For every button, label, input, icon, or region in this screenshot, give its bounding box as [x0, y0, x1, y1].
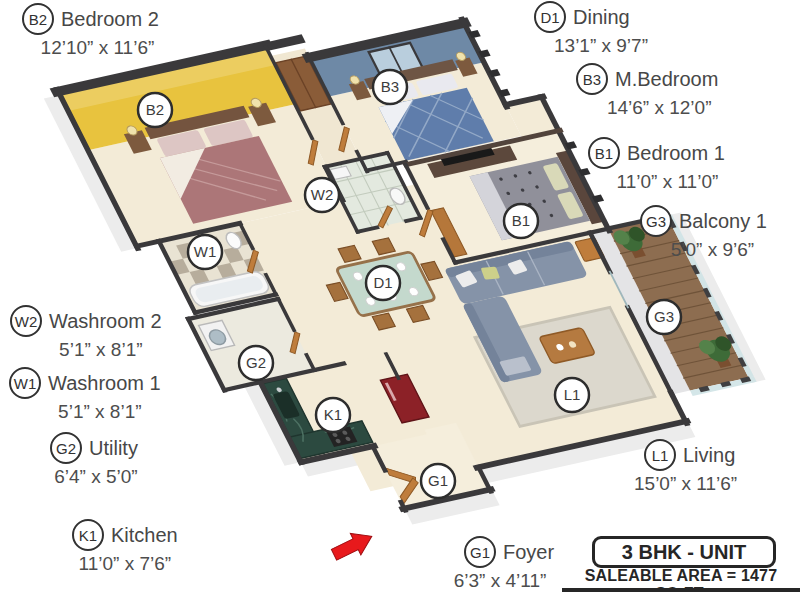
saleable-area-text: SALEABLE AREA = 1477 SQ.FT. — [562, 567, 800, 592]
svg-text:W1: W1 — [194, 243, 217, 260]
room-label-g3: G3Balcony 1 5’0” x 9’6” — [640, 205, 767, 261]
svg-text:B1: B1 — [512, 212, 530, 229]
room-name-w1: Washroom 1 — [48, 372, 161, 395]
floorplan-root: B2 B3 W2 W1 D1 B1 G2 K1 G1 L1 G3 B2Bedro… — [0, 0, 800, 592]
plan-badge-b3: B3 — [373, 70, 407, 104]
room-badge-g2: G2 — [50, 432, 82, 464]
room-badge-b2: B2 — [22, 3, 54, 35]
room-label-w1: W1Washroom 1 5’1” x 8’1” — [9, 367, 161, 423]
room-name-g1: Foyer — [503, 541, 554, 564]
room-name-d1: Dining — [573, 6, 630, 29]
room-label-k1: K1Kitchen 11’0” x 7’6” — [72, 519, 178, 575]
room-name-b2: Bedroom 2 — [61, 8, 159, 31]
plan-badge-w2: W2 — [305, 178, 339, 212]
entrance-arrow-icon — [329, 526, 377, 566]
room-dims-g2: 6’4” x 5’0” — [54, 466, 138, 488]
svg-text:G1: G1 — [428, 472, 448, 489]
room-name-w2: Washroom 2 — [49, 310, 162, 333]
svg-text:B2: B2 — [146, 101, 164, 118]
plan-badge-g3: G3 — [647, 300, 681, 334]
svg-text:L1: L1 — [564, 386, 581, 403]
room-name-g3: Balcony 1 — [679, 210, 767, 233]
room-label-g2: G2Utility 6’4” x 5’0” — [50, 432, 138, 488]
room-dims-g1: 6’3” x 4’11” — [446, 570, 554, 592]
plan-badge-b1: B1 — [504, 204, 538, 238]
room-dims-k1: 11’0” x 7’6” — [72, 553, 178, 575]
room-badge-l1: L1 — [644, 439, 676, 471]
room-label-w2: W2Washroom 2 5’1” x 8’1” — [10, 305, 162, 361]
room-dims-b2: 12’10” x 11’6” — [36, 37, 159, 59]
plan-badge-b2: B2 — [138, 93, 172, 127]
plan-badge-g1: G1 — [421, 464, 455, 498]
plan-badge-k1: K1 — [316, 398, 350, 432]
plan-badge-l1: L1 — [555, 378, 589, 412]
room-name-b3: M.Bedroom — [615, 68, 718, 91]
room-dims-d1: 13’1” x 9’7” — [554, 35, 648, 57]
room-badge-w1: W1 — [9, 367, 41, 399]
plan-badge-g2: G2 — [239, 346, 273, 380]
room-name-b1: Bedroom 1 — [627, 142, 725, 165]
room-label-b2: B2Bedroom 2 12’10” x 11’6” — [22, 3, 159, 59]
room-dims-w2: 5’1” x 8’1” — [40, 339, 162, 361]
svg-text:G3: G3 — [654, 308, 674, 325]
room-badge-k1: K1 — [72, 519, 104, 551]
room-dims-w1: 5’1” x 8’1” — [39, 401, 161, 423]
svg-text:W2: W2 — [311, 186, 334, 203]
svg-text:B3: B3 — [381, 78, 399, 95]
room-name-l1: Living — [683, 444, 735, 467]
svg-text:K1: K1 — [324, 406, 342, 423]
plan-badge-w1: W1 — [188, 235, 222, 269]
room-label-b3: B3M.Bedroom 14’6” x 12’0” — [576, 63, 718, 119]
room-label-l1: L1Living 15’0” x 11’6” — [644, 439, 737, 495]
room-badge-d1: D1 — [534, 1, 566, 33]
room-label-d1: D1Dining 13’1” x 9’7” — [534, 1, 648, 57]
room-dims-b1: 11’0” x 11’0” — [610, 171, 725, 193]
room-label-b1: B1Bedroom 1 11’0” x 11’0” — [588, 137, 725, 193]
room-dims-g3: 5’0” x 9’6” — [658, 239, 767, 261]
svg-text:G2: G2 — [246, 354, 266, 371]
plan-badge-d1: D1 — [366, 266, 400, 300]
room-label-g1: G1Foyer 6’3” x 4’11” — [464, 536, 554, 592]
room-badge-b3: B3 — [576, 63, 608, 95]
room-badge-g3: G3 — [640, 205, 672, 237]
room-badge-b1: B1 — [588, 137, 620, 169]
svg-text:D1: D1 — [373, 274, 392, 291]
room-badge-g1: G1 — [464, 536, 496, 568]
room-dims-b3: 14’6” x 12’0” — [600, 97, 718, 119]
room-badge-w2: W2 — [10, 305, 42, 337]
room-dims-l1: 15’0” x 11’6” — [634, 473, 737, 495]
unit-type-box: 3 BHK - UNIT — [592, 536, 776, 568]
room-name-k1: Kitchen — [111, 524, 178, 547]
room-name-g2: Utility — [89, 437, 138, 460]
